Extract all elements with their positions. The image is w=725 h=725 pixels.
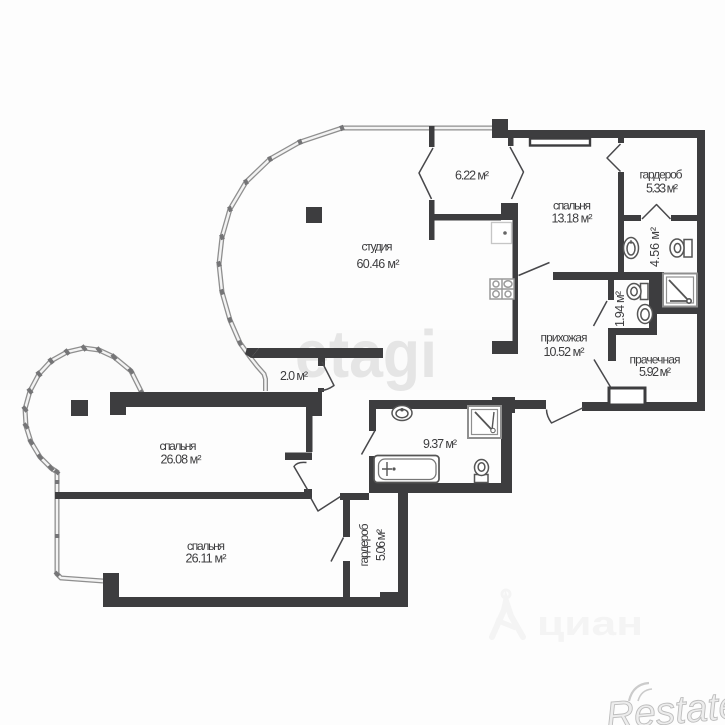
svg-text:5.92 м²: 5.92 м² <box>639 365 671 379</box>
svg-text:9.37 м²: 9.37 м² <box>423 437 457 451</box>
svg-text:5.33 м²: 5.33 м² <box>646 182 678 196</box>
svg-text:спальня: спальня <box>553 199 591 213</box>
svg-text:гардероб: гардероб <box>357 523 371 566</box>
svg-text:26.11 м²: 26.11 м² <box>186 552 227 566</box>
svg-text:26.08 м²: 26.08 м² <box>161 453 202 467</box>
svg-text:спальня: спальня <box>160 439 197 453</box>
svg-text:гардероб: гардероб <box>640 168 683 182</box>
svg-text:Restate: Restate <box>604 684 725 725</box>
svg-text:13.18 м²: 13.18 м² <box>552 212 593 226</box>
svg-text:1.94 м²: 1.94 м² <box>613 291 627 327</box>
svg-text:циан: циан <box>537 605 643 643</box>
svg-text:прихожая: прихожая <box>541 331 588 345</box>
svg-text:студия: студия <box>362 240 393 254</box>
svg-text:2.0 м²: 2.0 м² <box>280 369 308 383</box>
svg-text:5.06 м²: 5.06 м² <box>374 529 388 561</box>
svg-text:60.46 м²: 60.46 м² <box>357 257 400 271</box>
svg-text:4.56 м²: 4.56 м² <box>648 227 662 267</box>
svg-text:6.22 м²: 6.22 м² <box>455 169 489 183</box>
svg-text:10.52 м²: 10.52 м² <box>544 345 585 359</box>
